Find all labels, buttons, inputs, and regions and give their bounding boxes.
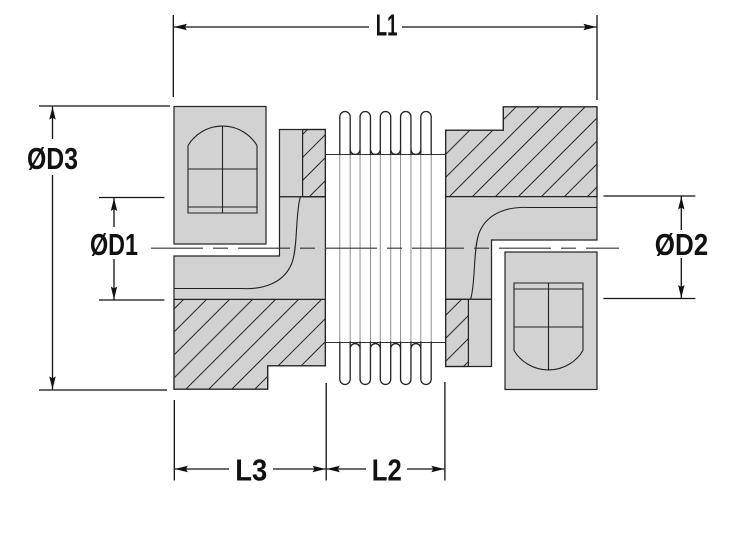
svg-text:L3: L3 bbox=[235, 453, 267, 488]
svg-text:L2: L2 bbox=[372, 453, 402, 488]
svg-text:ØD1: ØD1 bbox=[90, 227, 138, 262]
svg-text:L1: L1 bbox=[376, 7, 398, 42]
svg-text:ØD2: ØD2 bbox=[655, 227, 708, 262]
svg-text:ØD3: ØD3 bbox=[27, 141, 78, 176]
